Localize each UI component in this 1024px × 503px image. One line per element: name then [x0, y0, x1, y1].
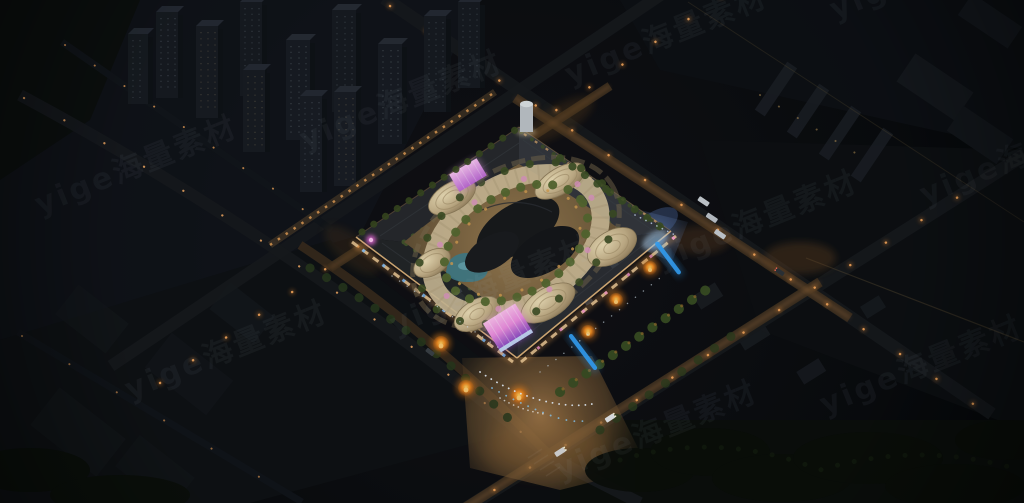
scene-canvas: yige海量素材 yige海量素材 yige海量素材 yige海量素材 yige…	[0, 0, 1024, 503]
night-aerial-rendering: yige海量素材 yige海量素材 yige海量素材 yige海量素材 yige…	[0, 0, 1024, 503]
blue-night-cast	[0, 0, 1024, 503]
